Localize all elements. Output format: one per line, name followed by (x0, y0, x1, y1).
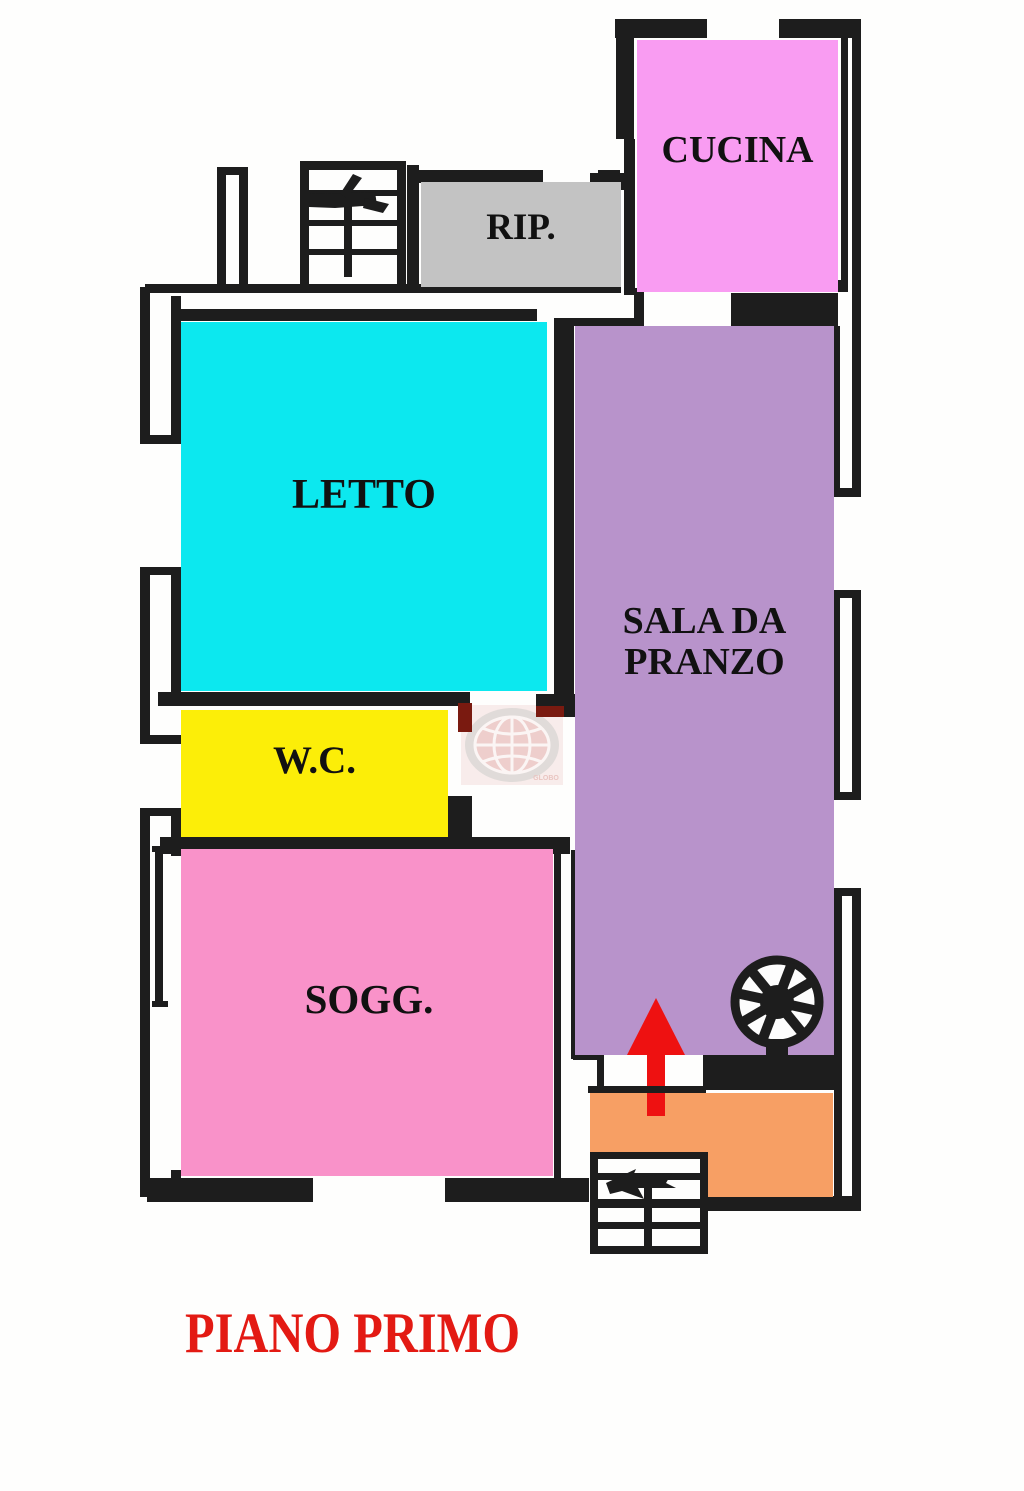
svg-text:GLOBO: GLOBO (533, 775, 559, 782)
